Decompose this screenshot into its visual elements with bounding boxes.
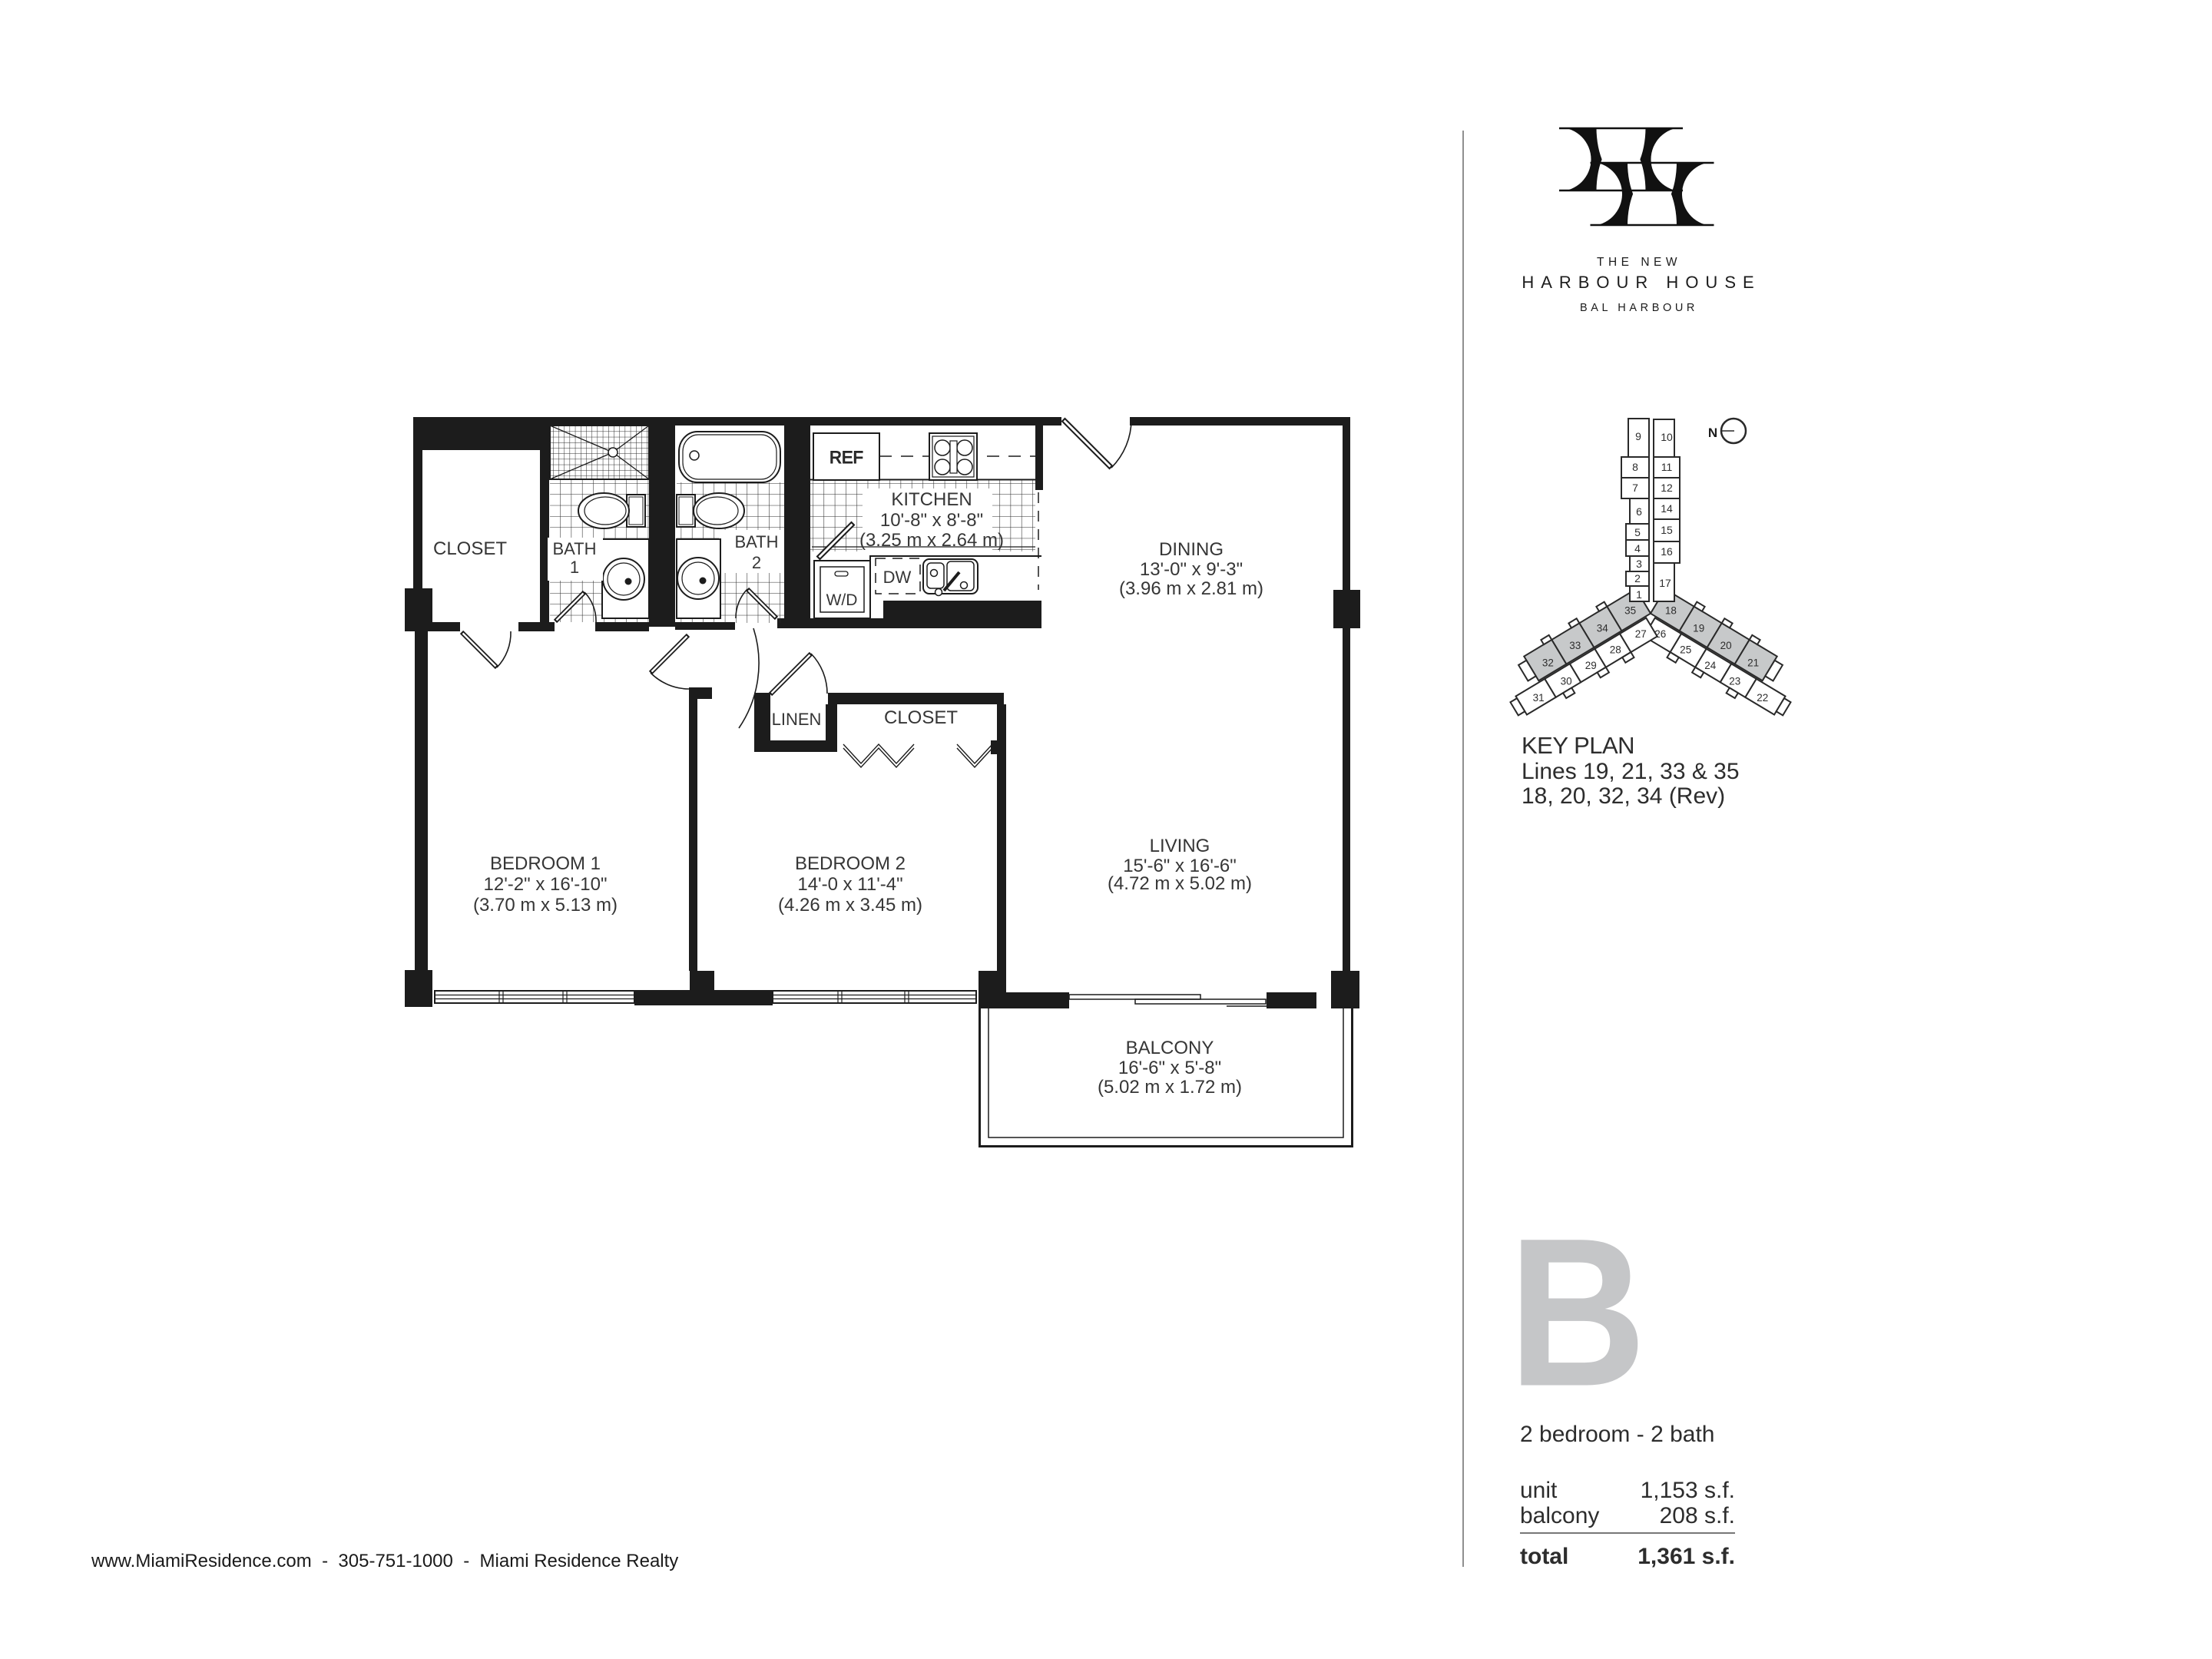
svg-text:23: 23 <box>1729 676 1740 687</box>
svg-text:2: 2 <box>1634 572 1641 584</box>
svg-text:B: B <box>1508 1194 1647 1430</box>
svg-text:4: 4 <box>1634 542 1641 555</box>
svg-text:24: 24 <box>1704 660 1717 671</box>
svg-text:KITCHEN: KITCHEN <box>891 489 972 510</box>
svg-text:8: 8 <box>1632 461 1638 473</box>
svg-text:16'-6" x 5'-8": 16'-6" x 5'-8" <box>1118 1058 1221 1078</box>
svg-text:13'-0" x 9'-3": 13'-0" x 9'-3" <box>1140 559 1243 580</box>
svg-text:31: 31 <box>1533 692 1545 704</box>
svg-text:BALCONY: BALCONY <box>1126 1038 1214 1058</box>
svg-text:21: 21 <box>1747 657 1759 668</box>
svg-text:14: 14 <box>1661 502 1673 515</box>
svg-text:14'-0 x 11'-4": 14'-0 x 11'-4" <box>797 874 902 895</box>
svg-text:(3.25 m x 2.64 m): (3.25 m x 2.64 m) <box>859 530 1004 551</box>
svg-text:17: 17 <box>1659 577 1671 589</box>
svg-text:HARBOUR HOUSE: HARBOUR HOUSE <box>1522 273 1760 292</box>
svg-text:REF: REF <box>829 448 863 467</box>
svg-text:16: 16 <box>1661 545 1673 558</box>
svg-text:2: 2 <box>752 553 761 572</box>
svg-text:9: 9 <box>1635 430 1641 442</box>
svg-text:unit: unit <box>1520 1478 1558 1503</box>
svg-text:15: 15 <box>1661 524 1673 536</box>
svg-text:18, 20, 32, 34 (Rev): 18, 20, 32, 34 (Rev) <box>1522 783 1725 809</box>
svg-text:1: 1 <box>1636 588 1642 601</box>
svg-text:10'-8" x 8'-8": 10'-8" x 8'-8" <box>880 510 983 531</box>
svg-text:(4.26 m x 3.45 m): (4.26 m x 3.45 m) <box>778 895 922 916</box>
svg-text:DINING: DINING <box>1159 539 1224 560</box>
svg-text:7: 7 <box>1632 482 1638 494</box>
svg-text:32: 32 <box>1542 657 1554 668</box>
svg-text:BAL HARBOUR: BAL HARBOUR <box>1580 302 1698 314</box>
svg-text:THE NEW: THE NEW <box>1597 256 1681 269</box>
svg-text:1: 1 <box>570 558 579 577</box>
svg-text:6: 6 <box>1636 505 1642 518</box>
svg-text:30: 30 <box>1561 676 1572 687</box>
svg-text:12'-2" x 16'-10": 12'-2" x 16'-10" <box>484 874 608 895</box>
svg-text:25: 25 <box>1680 644 1691 656</box>
svg-text:208 s.f.: 208 s.f. <box>1660 1503 1735 1528</box>
svg-text:34: 34 <box>1597 622 1609 634</box>
svg-text:(3.96 m x 2.81 m): (3.96 m x 2.81 m) <box>1119 578 1263 599</box>
svg-text:(4.72 m x 5.02 m): (4.72 m x 5.02 m) <box>1108 873 1252 894</box>
svg-text:(3.70 m x 5.13 m): (3.70 m x 5.13 m) <box>473 895 618 916</box>
svg-text:BEDROOM 1: BEDROOM 1 <box>490 853 601 874</box>
svg-text:LIVING: LIVING <box>1150 836 1210 856</box>
svg-text:12: 12 <box>1661 482 1673 494</box>
svg-text:28: 28 <box>1610 644 1621 656</box>
svg-text:CLOSET: CLOSET <box>884 707 958 728</box>
svg-text:10: 10 <box>1661 431 1673 443</box>
svg-text:11: 11 <box>1661 461 1673 473</box>
svg-text:35: 35 <box>1624 604 1636 616</box>
svg-text:BATH: BATH <box>734 532 778 551</box>
svg-text:balcony: balcony <box>1520 1503 1599 1528</box>
svg-text:W/D: W/D <box>826 591 858 609</box>
svg-text:1,361 s.f.: 1,361 s.f. <box>1637 1544 1735 1569</box>
svg-text:www.MiamiResidence.com - 305: www.MiamiResidence.com - 305-751-1000 - … <box>91 1551 678 1571</box>
svg-text:total: total <box>1520 1544 1568 1569</box>
svg-text:N: N <box>1708 426 1717 440</box>
svg-text:2 bedroom - 2 bath: 2 bedroom - 2 bath <box>1520 1422 1715 1447</box>
svg-text:3: 3 <box>1636 558 1642 570</box>
svg-text:5: 5 <box>1634 526 1641 538</box>
svg-text:BATH: BATH <box>552 539 596 558</box>
svg-text:(5.02 m x 1.72 m): (5.02 m x 1.72 m) <box>1098 1077 1242 1098</box>
svg-text:CLOSET: CLOSET <box>433 538 507 559</box>
svg-text:KEY PLAN: KEY PLAN <box>1522 732 1634 759</box>
svg-text:19: 19 <box>1693 622 1704 634</box>
svg-text:29: 29 <box>1585 660 1597 671</box>
svg-text:LINEN: LINEN <box>772 710 822 729</box>
svg-text:33: 33 <box>1569 640 1581 651</box>
svg-text:20: 20 <box>1720 640 1732 651</box>
svg-text:1,153 s.f.: 1,153 s.f. <box>1641 1478 1735 1503</box>
svg-text:27: 27 <box>1635 628 1647 640</box>
svg-text:18: 18 <box>1665 604 1677 616</box>
svg-text:22: 22 <box>1757 692 1768 704</box>
svg-text:Lines 19, 21, 33 & 35: Lines 19, 21, 33 & 35 <box>1522 759 1740 784</box>
svg-text:BEDROOM 2: BEDROOM 2 <box>795 853 906 874</box>
svg-text:DW: DW <box>883 568 912 587</box>
